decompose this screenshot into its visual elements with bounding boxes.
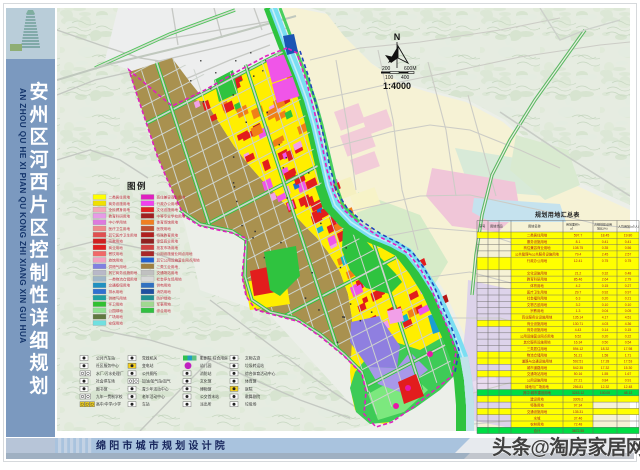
svg-text:公交首末站: 公交首末站 [200,394,219,399]
svg-text:12.41: 12.41 [574,259,583,263]
svg-text:200: 200 [382,66,391,72]
svg-text:文物古迹用地: 文物古迹用地 [527,302,548,307]
svg-text:1.3: 1.3 [576,309,581,313]
svg-text:图书馆: 图书馆 [96,386,108,391]
svg-text:安保用地: 安保用地 [109,321,124,326]
svg-text:18.32: 18.32 [601,347,610,351]
svg-text:全民健身用地: 全民健身用地 [109,207,131,212]
svg-text:2.79: 2.79 [625,278,632,282]
svg-text:108.75: 108.75 [573,246,583,250]
svg-text:城市道路用地: 城市道路用地 [527,365,548,370]
svg-text:消防站: 消防站 [200,371,212,376]
svg-text:0.20: 0.20 [602,334,609,338]
svg-text:0.22: 0.22 [625,334,632,338]
svg-text:水域: 水域 [534,415,541,420]
svg-text:行政办公用地: 行政办公用地 [527,258,548,263]
svg-text:N: N [394,32,401,42]
svg-text:文化设施用地: 文化设施用地 [157,207,179,212]
svg-text:区: 区 [29,127,48,148]
svg-text:其它商务设施用地: 其它商务设施用地 [109,270,138,275]
svg-text:1.55: 1.55 [602,372,609,376]
svg-text:17.98: 17.98 [624,347,633,351]
svg-text:综合体育活动中心: 综合体育活动中心 [245,371,276,376]
svg-text:600M: 600M [404,66,417,72]
svg-text:2.57: 2.57 [625,253,632,257]
svg-text:0.50: 0.50 [602,341,609,345]
svg-text:公用设施营业网点用地: 公用设施营业网点用地 [157,251,193,256]
svg-text:宗教用地: 宗教用地 [109,239,124,244]
svg-text:特殊教育用地: 特殊教育用地 [157,232,179,237]
svg-text:车站: 车站 [142,402,150,407]
svg-text:16.34: 16.34 [574,341,583,345]
svg-text:商业服务业设施用地: 商业服务业设施用地 [522,315,553,320]
svg-text:3309.2: 3309.2 [573,397,583,401]
svg-text:1.58: 1.58 [602,353,609,357]
svg-text:135.31: 135.31 [573,410,583,414]
svg-text:州: 州 [29,104,48,126]
svg-text:消防用地: 消防用地 [157,289,172,294]
svg-text:公用设施用地: 公用设施用地 [527,378,548,383]
svg-text:广场用地: 广场用地 [109,314,124,319]
svg-text:19.80: 19.80 [624,234,633,238]
svg-text:0.41: 0.41 [625,240,632,244]
svg-text:27.21: 27.21 [574,379,583,383]
svg-text:商业设施用地: 商业设施用地 [527,321,548,326]
svg-text:AN ZHOU QU HE XI PIAN QU KONG: AN ZHOU QU HE XI PIAN QU KONG ZHI XIANG … [18,88,27,344]
svg-text:㎡: ㎡ [570,226,573,231]
svg-text:6.52: 6.52 [575,334,582,338]
svg-text:行政办公用地: 行政办公用地 [157,201,179,206]
svg-text:图例: 图例 [127,181,147,191]
svg-text:48.12: 48.12 [624,391,633,395]
svg-text:体育用地: 体育用地 [530,283,544,288]
svg-text:社区服务中心: 社区服务中心 [96,363,119,368]
svg-text:其它公用设施营业网点用地: 其它公用设施营业网点用地 [157,258,201,263]
svg-text:0.75: 0.75 [602,259,609,263]
svg-text:零售商业用地: 零售商业用地 [157,239,179,244]
svg-text:公共厕所: 公共厕所 [142,371,157,376]
svg-text:水厂/污水处理厂: 水厂/污水处理厂 [96,371,124,376]
svg-text:旅馆用地: 旅馆用地 [109,258,124,263]
svg-text:其它服务设施用地: 其它服务设施用地 [523,340,551,345]
svg-text:物流仓储用地: 物流仓储用地 [527,352,548,357]
svg-text:歌舞剧院: 歌舞剧院 [245,394,260,399]
svg-text:17.53: 17.53 [624,360,633,364]
svg-text:4.43: 4.43 [575,328,582,332]
svg-text:0.32: 0.32 [602,271,609,275]
svg-text:性: 性 [29,283,48,306]
svg-text:3.2: 3.2 [576,303,581,307]
svg-text:绵阳市城市规划设计院: 绵阳市城市规划设计院 [96,439,228,452]
svg-text:批发市场用地: 批发市场用地 [157,245,179,250]
svg-text:幼儿园: 幼儿园 [200,363,212,368]
svg-text:公园绿地: 公园绿地 [109,308,124,313]
svg-text:256.81: 256.81 [573,385,583,389]
svg-text:交通枢纽用地: 交通枢纽用地 [109,283,131,288]
svg-text:18.45: 18.45 [601,234,610,238]
svg-text:72.48: 72.48 [574,423,583,427]
svg-text:交通设施用地: 交通设施用地 [527,409,548,414]
svg-text:4.17: 4.17 [602,316,609,320]
svg-text:其中:城市建设用地: 其中:城市建设用地 [523,390,552,395]
svg-text:区: 区 [29,218,48,239]
svg-text:综合用地: 综合用地 [157,308,172,313]
svg-text:公用设施营业网点用地: 公用设施营业网点用地 [520,333,555,338]
svg-text:17.28: 17.28 [601,360,610,364]
svg-text:交通场站用地: 交通场站用地 [527,371,548,376]
svg-text:制: 制 [29,261,48,284]
svg-text:环卫用地: 环卫用地 [109,302,124,307]
svg-text:公共管理与公共服务设施用地: 公共管理与公共服务设施用地 [515,252,560,257]
svg-text:594.12: 594.12 [573,347,583,351]
svg-text:文化馆: 文化馆 [200,379,212,384]
svg-text:农林用地: 农林用地 [530,422,544,427]
svg-text:0.84: 0.84 [602,379,609,383]
svg-text:79.4: 79.4 [575,253,582,257]
svg-text:3672.55: 3672.55 [572,429,584,433]
svg-text:51.21: 51.21 [574,353,583,357]
svg-text:100.00: 100.00 [600,391,610,395]
svg-text:党政机关: 党政机关 [142,356,157,361]
svg-text:商务设施用地: 商务设施用地 [527,327,548,332]
svg-text:地比(%): 地比(%) [597,226,608,231]
svg-text:医疗卫生用地: 医疗卫生用地 [109,226,131,231]
svg-text:变电站: 变电站 [142,363,154,368]
svg-text:0.48: 0.48 [625,271,632,275]
svg-text:0.75: 0.75 [625,259,632,263]
svg-text:商住兼容商业用地: 商住兼容商业用地 [157,195,186,200]
svg-text:社会福利用地: 社会福利用地 [527,296,548,301]
svg-text:0.91: 0.91 [625,379,632,383]
svg-text:西: 西 [29,172,48,193]
svg-text:中等专业学校用地: 中等专业学校用地 [157,213,186,218]
svg-text:详: 详 [29,306,48,329]
svg-text:二类居住用地: 二类居住用地 [527,233,548,238]
svg-text:青少年活动中心: 青少年活动中心 [142,386,169,391]
svg-text:体育馆: 体育馆 [245,379,257,384]
svg-text:4.03: 4.03 [602,322,609,326]
svg-text:37.46: 37.46 [574,416,583,420]
svg-text:文物古迹: 文物古迹 [245,356,260,361]
svg-text:道路与交通设施用地: 道路与交通设施用地 [522,359,553,364]
svg-text:4.2: 4.2 [576,284,581,288]
svg-text:序号: 序号 [479,224,485,229]
svg-text:用地代码: 用地代码 [490,224,503,229]
svg-text:供电用地: 供电用地 [157,283,172,288]
svg-text:中小学用地: 中小学用地 [109,220,127,225]
svg-text:0.54: 0.54 [625,341,632,345]
svg-text:加油/加气站/加气: 加油/加气站/加气 [142,379,171,384]
svg-text:4.36: 4.36 [625,322,632,326]
svg-text:21.2: 21.2 [575,271,582,275]
svg-text:控: 控 [29,238,48,261]
svg-text:医院用地: 医院用地 [157,226,172,231]
svg-text:宗教用地: 宗教用地 [530,308,544,313]
svg-text:8.1: 8.1 [576,240,581,244]
svg-text:0.97: 0.97 [625,290,632,294]
svg-text:划: 划 [29,374,48,397]
svg-text:0.05: 0.05 [625,309,632,313]
svg-text:2.45: 2.45 [602,253,609,257]
svg-text:0.15: 0.15 [602,284,609,288]
svg-text:0.04: 0.04 [602,309,609,313]
svg-text:3243.12: 3243.12 [572,391,584,395]
svg-text:4.51: 4.51 [625,316,632,320]
svg-text:医疗卫生用地: 医疗卫生用地 [527,289,548,294]
svg-text:0.14: 0.14 [602,328,609,332]
svg-text:医院: 医院 [245,386,253,391]
svg-text:排水用地: 排水用地 [109,289,124,294]
svg-text:0.10: 0.10 [602,303,609,307]
svg-text:0.92: 0.92 [602,290,609,294]
svg-text:派出所: 派出所 [200,402,212,407]
svg-text:特殊用地: 特殊用地 [530,403,544,408]
svg-text:130.71: 130.71 [573,322,583,326]
svg-text:1:4000: 1:4000 [383,81,411,91]
svg-text:用地名称: 用地名称 [528,224,542,229]
svg-text:九年一贯制学校: 九年一贯制学校 [96,394,123,399]
svg-text:592.51: 592.51 [573,360,583,364]
svg-text:社会停车场: 社会停车场 [96,379,115,384]
svg-text:50.16: 50.16 [574,372,583,376]
svg-text:河: 河 [29,149,48,171]
svg-text:二类居住用地: 二类居住用地 [109,195,131,200]
svg-text:6.3: 6.3 [576,297,581,301]
svg-text:0.15: 0.15 [625,328,632,332]
svg-text:29.7: 29.7 [575,290,582,294]
svg-text:文化设施用地: 文化设施用地 [527,270,548,275]
svg-text:交通场站用地: 交通场站用地 [157,270,179,275]
svg-text:餐饮用地: 餐饮用地 [109,251,124,256]
svg-text:合计: 合计 [534,428,541,433]
svg-text:135.14: 135.14 [573,316,583,320]
svg-text:0.20: 0.20 [602,297,609,301]
svg-text:头条@淘房家居网: 头条@淘房家居网 [492,435,640,459]
svg-text:0.27: 0.27 [625,284,632,288]
svg-text:片: 片 [29,193,48,216]
svg-text:社会停车场用地: 社会停车场用地 [157,276,183,281]
svg-text:博物馆: 博物馆 [200,386,212,391]
svg-text:一类物流仓储用地: 一类物流仓储用地 [109,276,138,281]
svg-text:12.32: 12.32 [601,385,610,389]
svg-text:其它医疗卫生用地: 其它医疗卫生用地 [109,232,138,237]
svg-text:2.64: 2.64 [602,278,609,282]
svg-text:0.10: 0.10 [625,303,632,307]
svg-text:建设用地: 建设用地 [530,396,544,401]
svg-text:0.21: 0.21 [625,297,632,301]
svg-text:0.56: 0.56 [625,246,632,250]
svg-text:二类工业用地: 二类工业用地 [157,264,179,269]
svg-text:垃圾场: 垃圾场 [245,402,257,407]
svg-text:三类居住用地: 三类居住用地 [527,346,548,351]
svg-text:安: 安 [29,80,48,103]
svg-text:体育场馆用地: 体育场馆用地 [157,220,179,225]
svg-text:老年活动中心: 老年活动中心 [142,394,165,399]
svg-text:服务设施用地: 服务设施用地 [527,239,548,244]
svg-text:教育科研用地: 教育科研用地 [527,277,548,282]
svg-text:教育科研用地: 教育科研用地 [109,213,131,218]
svg-text:542.35: 542.35 [573,366,583,370]
svg-text:影剧院·综合用房: 影剧院·综合用房 [200,356,228,361]
svg-text:0.35: 0.35 [602,246,609,250]
svg-text:供燃气用地: 供燃气用地 [109,264,127,269]
svg-text:高中/中学/小学: 高中/中学/小学 [96,402,121,407]
svg-text:人均用地(㎡/人): 人均用地(㎡/人) [618,224,639,229]
svg-text:85.46: 85.46 [574,278,583,282]
svg-text:1.71: 1.71 [625,353,632,357]
svg-text:绿地与广场用地: 绿地与广场用地 [525,384,549,389]
svg-text:规: 规 [29,351,48,374]
svg-text:商务设施用地: 商务设施用地 [109,201,131,206]
svg-text:597.7: 597.7 [574,234,583,238]
svg-text:垃圾转运站: 垃圾转运站 [245,363,264,368]
svg-text:17.32: 17.32 [601,366,610,370]
svg-text:1.67: 1.67 [625,372,632,376]
svg-text:供燃气用地: 供燃气用地 [109,295,127,300]
svg-text:细: 细 [29,329,48,352]
svg-text:商住兼容商业用地: 商住兼容商业用地 [523,245,551,250]
svg-text:0.41: 0.41 [602,240,609,244]
svg-text:12.48: 12.48 [624,385,633,389]
svg-text:公共汽车站: 公共汽车站 [96,356,115,361]
svg-text:商业用地: 商业用地 [109,245,124,250]
svg-text:军事用地: 军事用地 [157,302,172,307]
svg-text:97.34: 97.34 [574,404,583,408]
svg-text:防护绿地: 防护绿地 [157,295,172,300]
svg-text:15.30: 15.30 [624,366,633,370]
svg-text:规划用地汇总表: 规划用地汇总表 [535,211,580,219]
